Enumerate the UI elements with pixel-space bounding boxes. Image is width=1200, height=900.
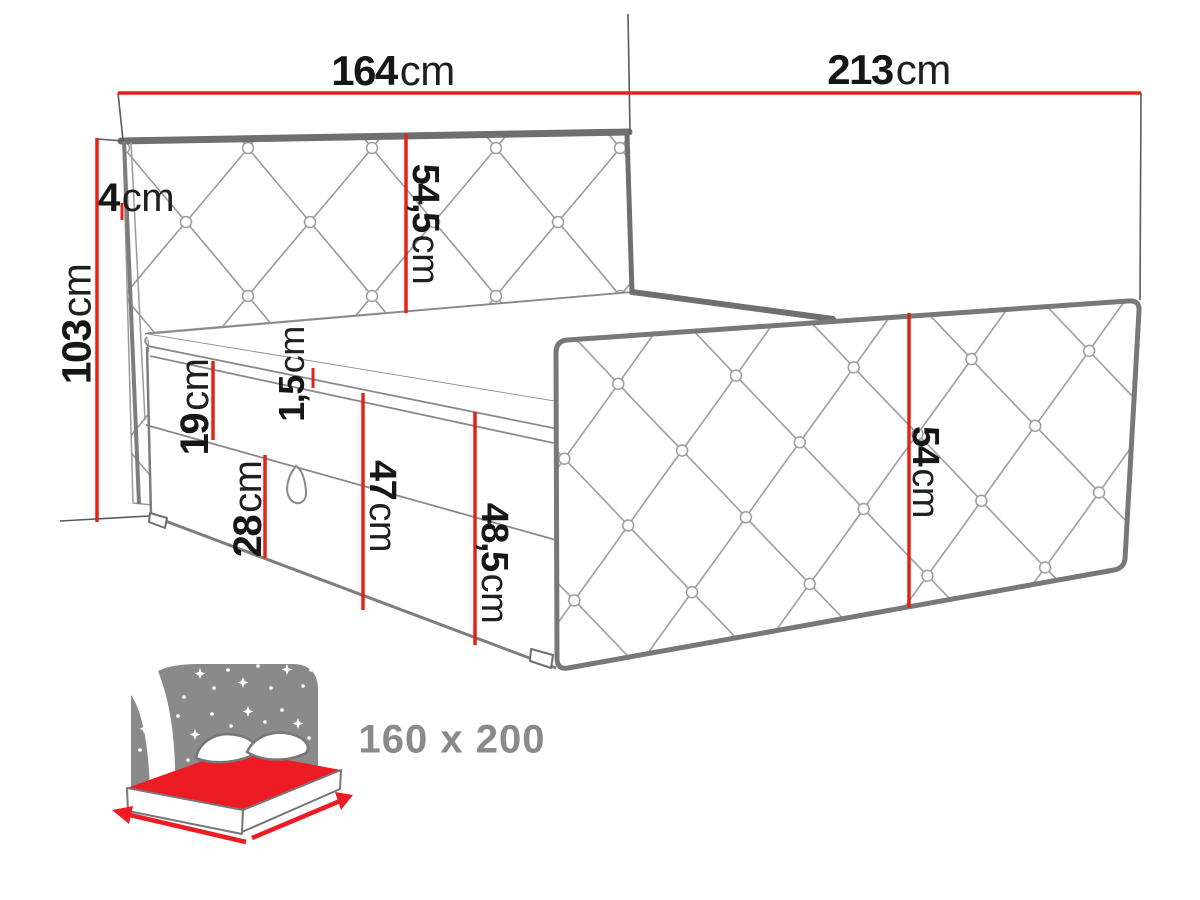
bed-size-icon (112, 664, 353, 842)
dim-label-headboard-panel-height: 54,5cm (406, 164, 444, 285)
dim-unit: cm (475, 574, 513, 624)
dim-label-base-height: 47cm (363, 460, 401, 552)
dim-label-headboard-width: 164cm (331, 50, 455, 92)
dim-value: 103 (57, 320, 98, 384)
dim-label-side-panel-height: 54cm (906, 426, 944, 518)
dim-value: 54,5 (406, 164, 444, 232)
dim-value: 54 (906, 426, 944, 465)
dim-unit: cm (57, 264, 98, 318)
dim-value: 47 (363, 460, 401, 499)
dim-unit: cm (228, 461, 268, 513)
dim-value: 4 (98, 178, 119, 218)
dim-unit: cm (274, 326, 310, 373)
dim-label-base-with-rim-height: 48,5cm (475, 503, 513, 624)
dim-unit: cm (896, 49, 951, 91)
size-badge: 160 x 200 (359, 718, 546, 763)
dim-label-headboard-thickness: 4cm (98, 178, 174, 218)
dim-unit: cm (363, 502, 401, 552)
dim-label-bed-length: 213cm (827, 49, 951, 91)
dim-unit: cm (175, 359, 215, 411)
dim-value: 213 (827, 49, 893, 91)
bed-dimension-diagram: 164cm 213cm 4cm 103cm 54,5cm 1,5cm 19cm … (0, 0, 1200, 900)
dim-value: 19 (175, 414, 215, 456)
dim-value: 48,5 (475, 503, 513, 571)
dim-unit: cm (406, 235, 444, 285)
side-panel (556, 301, 1139, 668)
dim-value: 28 (228, 516, 268, 558)
dim-label-top-box-height: 19cm (175, 359, 215, 456)
dim-value: 1,5 (274, 376, 310, 422)
dim-label-mattress-rim-gap: 1,5cm (274, 326, 310, 422)
dim-unit: cm (906, 468, 944, 518)
dim-value: 164 (331, 50, 397, 92)
dim-unit: cm (122, 178, 174, 218)
dim-unit: cm (400, 50, 455, 92)
dim-label-total-height: 103cm (57, 264, 98, 385)
dim-label-storage-box-height: 28cm (228, 461, 268, 558)
